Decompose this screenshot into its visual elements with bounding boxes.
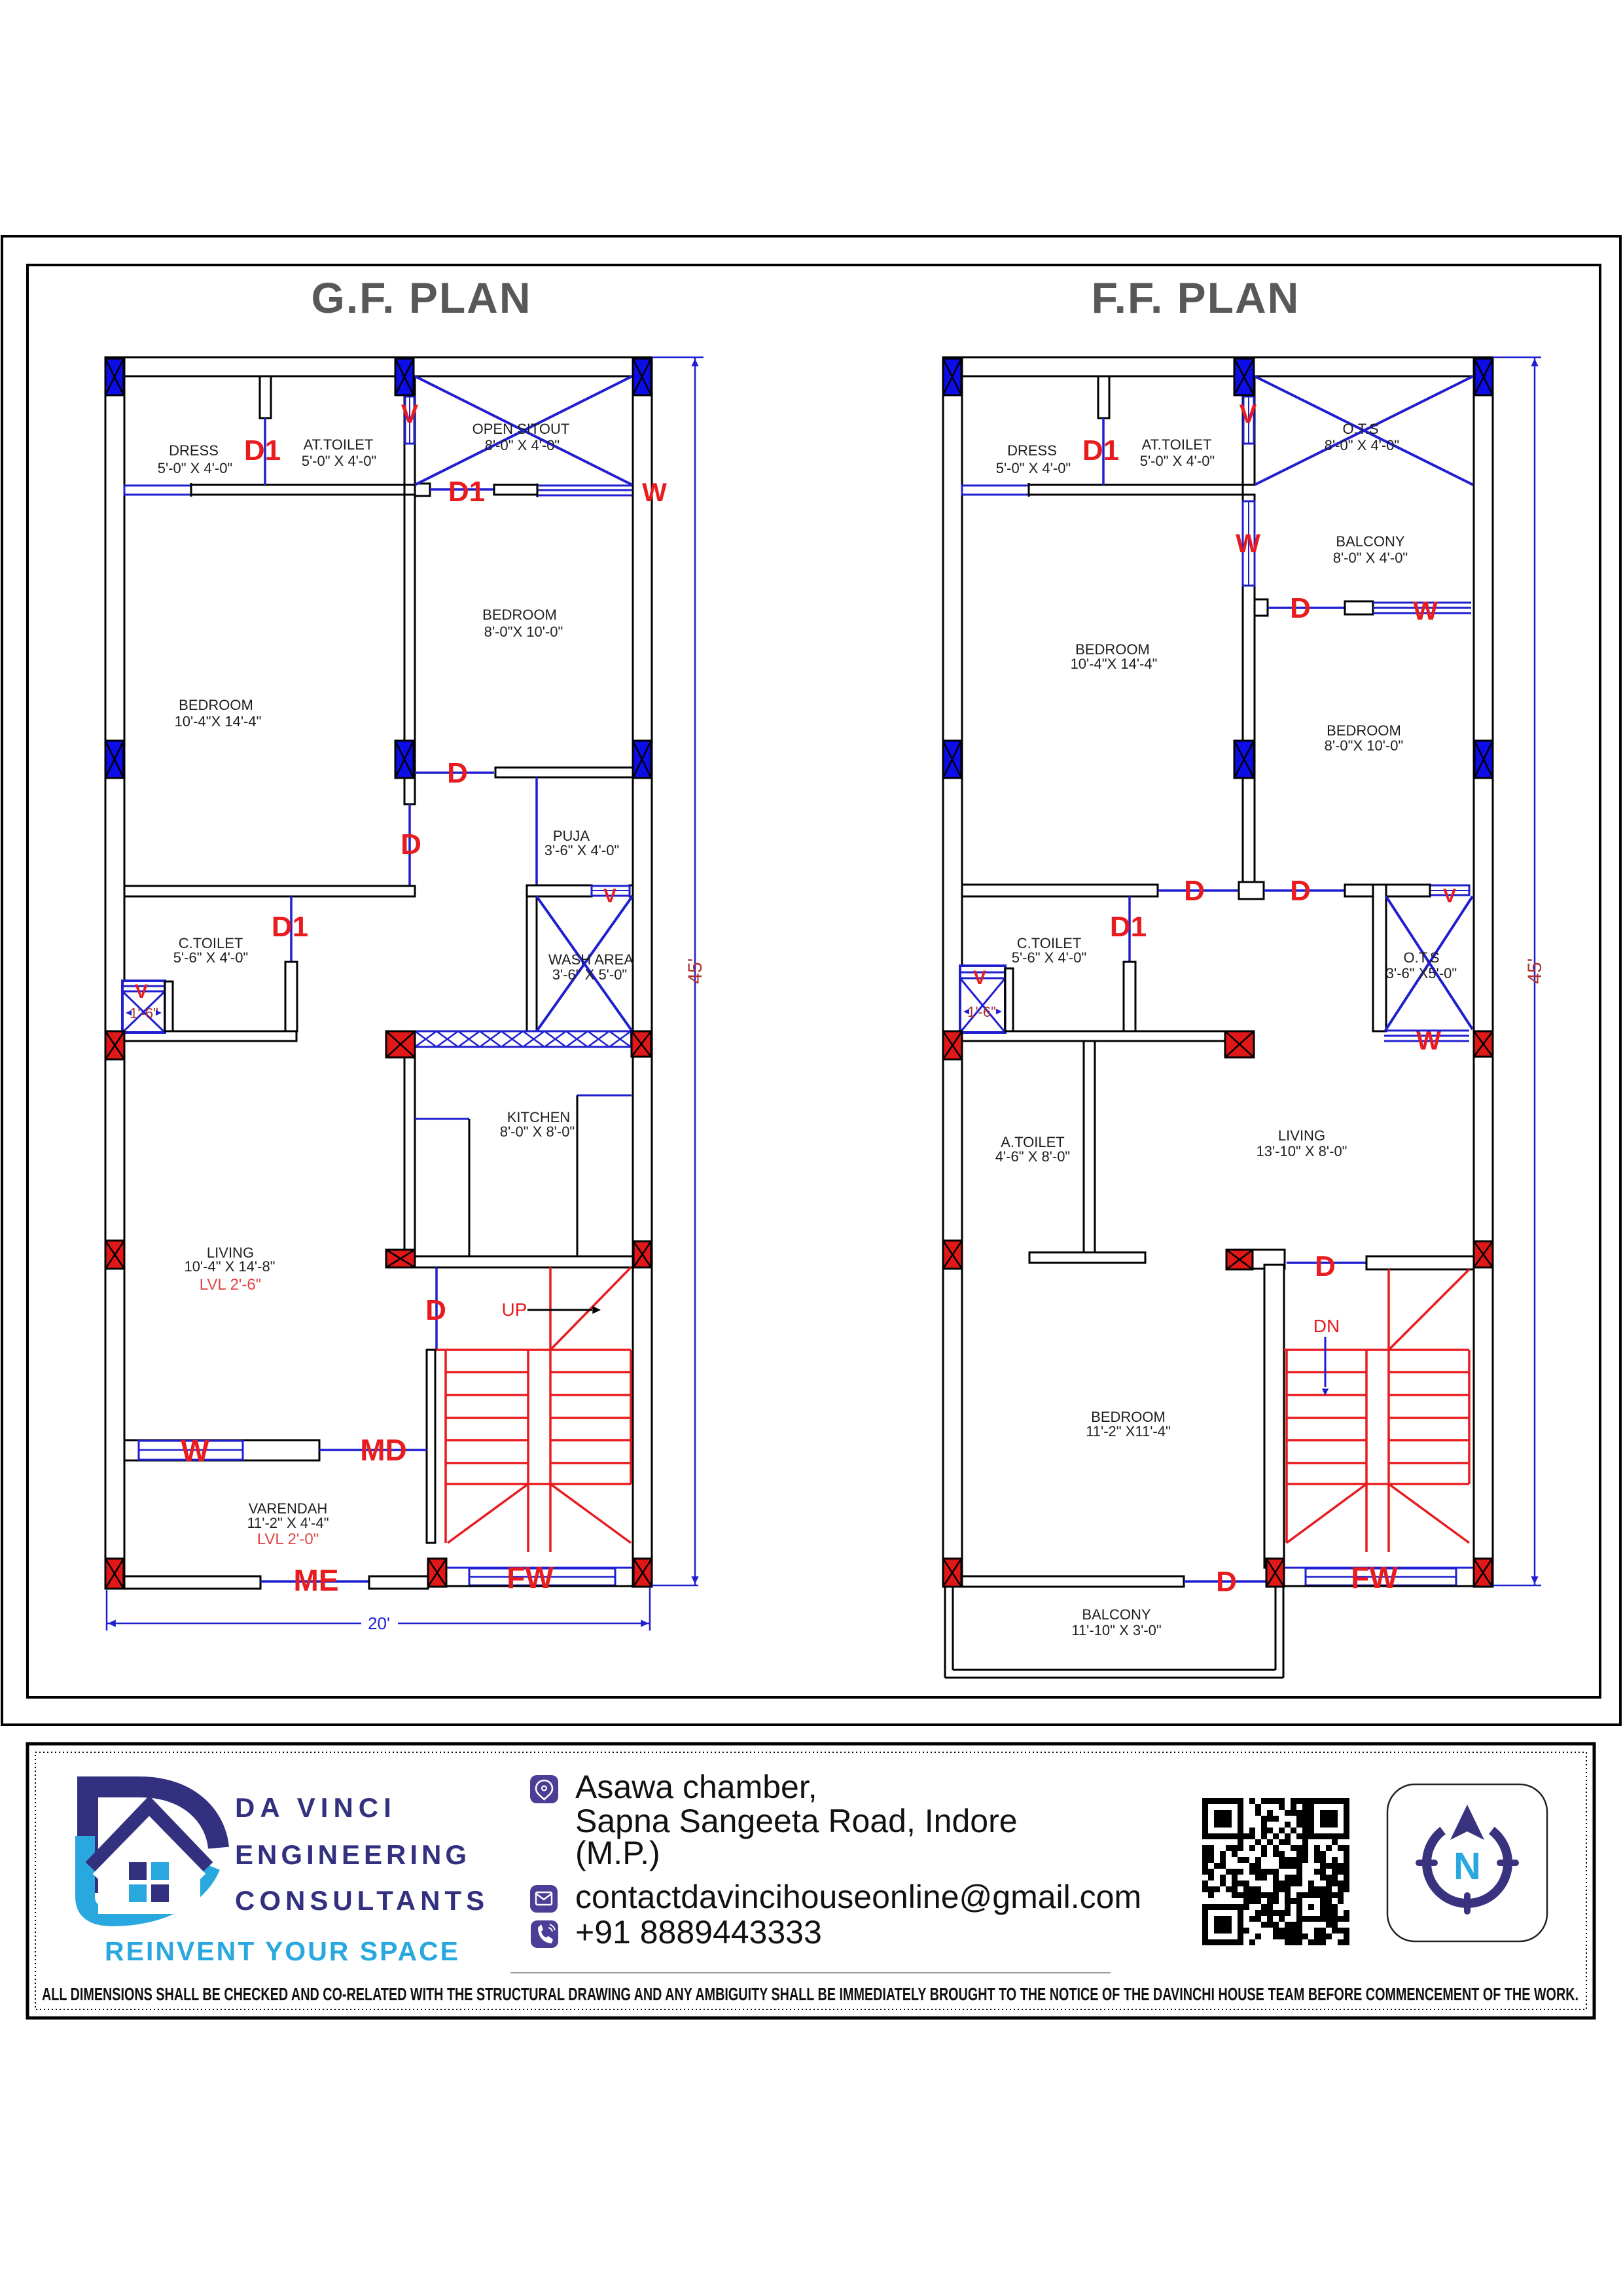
svg-text:BALCONY: BALCONY [1082, 1606, 1150, 1623]
svg-text:W: W [1236, 529, 1260, 558]
svg-text:10'-4"X 14'-4": 10'-4"X 14'-4" [175, 713, 262, 730]
svg-text:8'-0" X 8'-0": 8'-0" X 8'-0" [500, 1123, 575, 1140]
svg-text:W: W [642, 478, 667, 507]
svg-text:contactdavincihouseonline@gmai: contactdavincihouseonline@gmail.com [575, 1879, 1141, 1915]
svg-text:D: D [1216, 1566, 1237, 1598]
svg-text:W: W [1413, 597, 1438, 626]
svg-text:WASH AREA: WASH AREA [548, 951, 633, 968]
svg-text:D: D [1184, 875, 1205, 907]
svg-text:LIVING: LIVING [1278, 1127, 1325, 1144]
svg-text:10'-4" X 14'-8": 10'-4" X 14'-8" [185, 1258, 276, 1275]
svg-text:BEDROOM: BEDROOM [1327, 722, 1401, 739]
svg-text:OPEN SITOUT: OPEN SITOUT [473, 421, 570, 437]
svg-text:8'-0" X 4'-0": 8'-0" X 4'-0" [1325, 437, 1400, 453]
svg-text:(M.P.): (M.P.) [575, 1835, 660, 1871]
svg-text:DA VINCI: DA VINCI [235, 1792, 397, 1823]
svg-text:BEDROOM: BEDROOM [482, 607, 557, 623]
svg-text:8'-0"X 10'-0": 8'-0"X 10'-0" [1325, 737, 1404, 754]
svg-text:ME: ME [294, 1563, 339, 1597]
svg-text:1'-6": 1'-6" [130, 1005, 158, 1021]
svg-text:AT.TOILET: AT.TOILET [1142, 436, 1212, 453]
svg-text:11'-10" X 3'-0": 11'-10" X 3'-0" [1071, 1622, 1161, 1638]
svg-text:V: V [603, 885, 616, 907]
svg-text:F.F. PLAN: F.F. PLAN [1092, 274, 1300, 322]
svg-text:W: W [181, 1434, 209, 1468]
svg-text:N: N [1454, 1845, 1481, 1888]
svg-text:45': 45' [685, 958, 706, 983]
svg-text:CONSULTANTS: CONSULTANTS [235, 1885, 489, 1916]
svg-text:BEDROOM: BEDROOM [179, 697, 253, 713]
svg-text:3'-6" X5'-0": 3'-6" X5'-0" [1386, 965, 1457, 981]
svg-text:O.T.S: O.T.S [1342, 421, 1378, 437]
svg-text:20': 20' [368, 1614, 390, 1633]
svg-text:1'-6": 1'-6" [967, 1004, 996, 1020]
svg-text:5'-6" X 4'-0": 5'-6" X 4'-0" [1012, 949, 1087, 966]
svg-text:D1: D1 [448, 476, 485, 508]
svg-text:D: D [401, 828, 421, 860]
svg-text:O.T.S: O.T.S [1403, 949, 1439, 966]
svg-text:FW: FW [1351, 1561, 1398, 1595]
svg-text:V: V [973, 967, 986, 989]
svg-text:Asawa chamber,: Asawa chamber, [575, 1769, 817, 1805]
svg-text:5'-6" X 4'-0": 5'-6" X 4'-0" [173, 949, 249, 966]
svg-text:11'-2" X11'-4": 11'-2" X11'-4" [1086, 1423, 1171, 1439]
svg-text:Sapna Sangeeta Road, Indore: Sapna Sangeeta Road, Indore [575, 1803, 1018, 1839]
svg-text:V: V [1443, 885, 1456, 907]
svg-text:13'-10" X 8'-0": 13'-10" X 8'-0" [1257, 1143, 1347, 1159]
svg-text:45': 45' [1524, 958, 1546, 983]
svg-text:DRESS: DRESS [1007, 442, 1057, 459]
svg-text:D1: D1 [244, 434, 281, 467]
svg-text:DN: DN [1313, 1316, 1340, 1336]
svg-text:ENGINEERING: ENGINEERING [235, 1839, 471, 1870]
svg-text:+91 8889443333: +91 8889443333 [575, 1914, 822, 1951]
svg-text:D: D [425, 1294, 446, 1326]
svg-text:ALL DIMENSIONS SHALL BE CHECKE: ALL DIMENSIONS SHALL BE CHECKED AND CO-R… [42, 1984, 1578, 2004]
svg-text:MD: MD [360, 1433, 407, 1467]
svg-text:8'-0" X 4'-0": 8'-0" X 4'-0" [1333, 550, 1408, 566]
svg-text:V: V [1240, 400, 1257, 429]
svg-text:D: D [1290, 875, 1311, 907]
svg-text:8'-0"X 10'-0": 8'-0"X 10'-0" [484, 624, 563, 640]
svg-text:REINVENT YOUR SPACE: REINVENT YOUR SPACE [105, 1936, 460, 1966]
svg-text:W: W [1416, 1027, 1441, 1055]
svg-text:11'-2" X 4'-4": 11'-2" X 4'-4" [247, 1515, 329, 1531]
svg-text:3'-6" X 4'-0": 3'-6" X 4'-0" [544, 842, 620, 858]
svg-text:5'-0" X 4'-0": 5'-0" X 4'-0" [302, 453, 377, 469]
svg-text:4'-6" X 8'-0": 4'-6" X 8'-0" [995, 1148, 1071, 1165]
svg-text:5'-0" X 4'-0": 5'-0" X 4'-0" [158, 460, 233, 476]
svg-text:DRESS: DRESS [169, 442, 219, 459]
svg-text:D: D [1315, 1250, 1336, 1282]
svg-text:8'-0" X 4'-0": 8'-0" X 4'-0" [485, 437, 560, 453]
svg-text:FW: FW [507, 1561, 554, 1595]
svg-text:D1: D1 [272, 911, 308, 943]
svg-text:D1: D1 [1082, 434, 1119, 467]
svg-text:5'-0" X 4'-0": 5'-0" X 4'-0" [996, 460, 1071, 476]
svg-text:G.F. PLAN: G.F. PLAN [311, 274, 531, 322]
svg-text:D: D [447, 757, 468, 789]
svg-text:D: D [1290, 592, 1311, 624]
svg-text:AT.TOILET: AT.TOILET [304, 436, 374, 453]
svg-text:V: V [401, 400, 419, 429]
svg-text:D1: D1 [1110, 911, 1147, 943]
svg-text:LVL 2'-6": LVL 2'-6" [200, 1276, 262, 1294]
svg-text:LVL 2'-0": LVL 2'-0" [257, 1530, 319, 1548]
svg-text:V: V [135, 981, 148, 1002]
svg-text:UP: UP [502, 1299, 527, 1320]
svg-text:5'-0" X 4'-0": 5'-0" X 4'-0" [1140, 453, 1215, 469]
svg-text:3'-6" X 5'-0": 3'-6" X 5'-0" [552, 966, 628, 983]
svg-text:10'-4"X 14'-4": 10'-4"X 14'-4" [1071, 656, 1158, 672]
svg-text:BALCONY: BALCONY [1336, 533, 1404, 550]
